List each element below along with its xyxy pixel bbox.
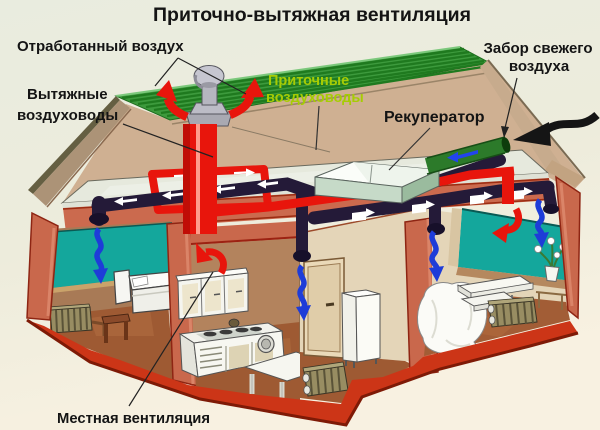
svg-text:Отработанный воздух: Отработанный воздух bbox=[17, 38, 184, 55]
svg-text:Приточно-вытяжная вентиляция: Приточно-вытяжная вентиляция bbox=[153, 4, 471, 26]
svg-text:Вытяжные: Вытяжные bbox=[27, 86, 108, 103]
svg-text:Местная вентиляция: Местная вентиляция bbox=[57, 411, 210, 427]
svg-text:воздуховоды: воздуховоды bbox=[266, 90, 364, 106]
svg-text:Приточные: Приточные bbox=[268, 73, 349, 89]
svg-text:Рекуператор: Рекуператор bbox=[384, 109, 485, 126]
svg-text:воздуха: воздуха bbox=[509, 58, 570, 75]
svg-text:воздуховоды: воздуховоды bbox=[17, 107, 118, 124]
svg-text:Забор свежего: Забор свежего bbox=[484, 40, 593, 57]
